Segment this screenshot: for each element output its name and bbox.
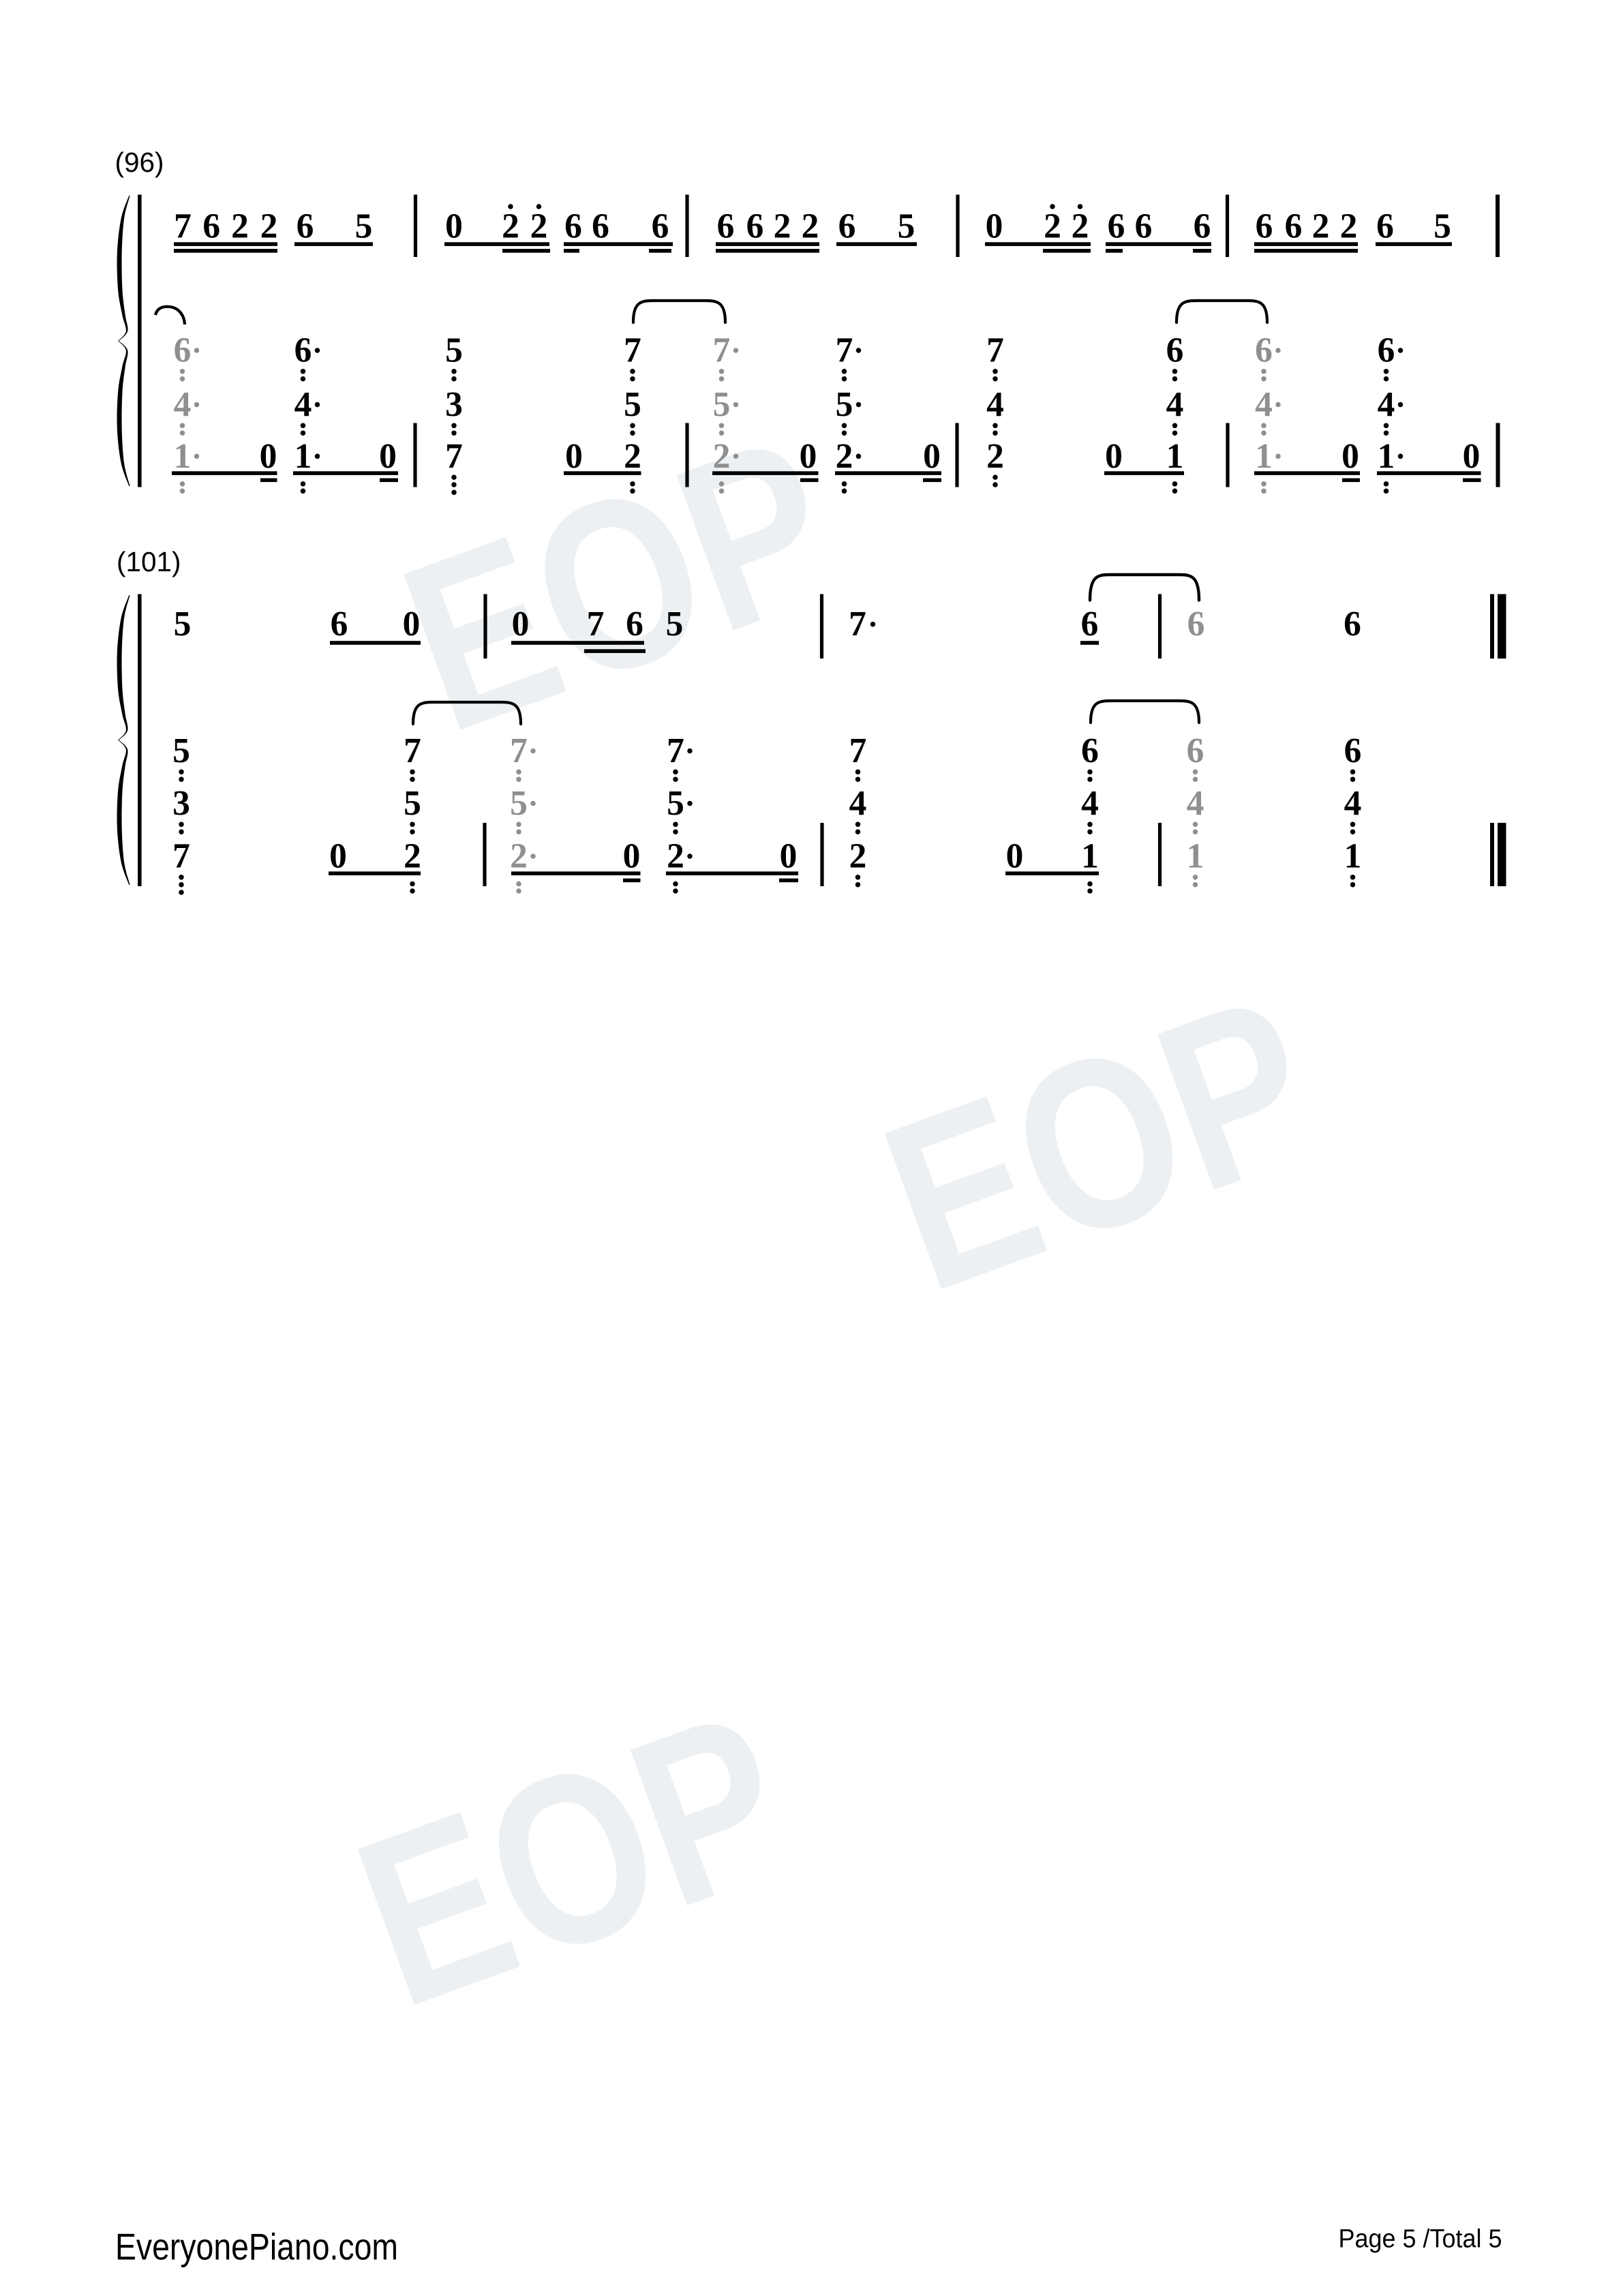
svg-text:Page 5 /Total 5: Page 5 /Total 5 (1339, 2225, 1502, 2254)
svg-text:7: 7 (587, 605, 605, 644)
svg-text:4: 4 (849, 784, 867, 823)
svg-text:6: 6 (297, 207, 314, 246)
svg-text:5: 5 (898, 207, 915, 246)
svg-text:2: 2 (404, 837, 421, 876)
svg-text:4: 4 (1255, 385, 1273, 424)
svg-text:0: 0 (512, 605, 530, 644)
svg-text:2: 2 (986, 437, 1004, 476)
svg-text:6: 6 (1135, 207, 1153, 246)
svg-text:4: 4 (294, 385, 312, 424)
svg-text:4: 4 (174, 385, 192, 424)
svg-text:6: 6 (838, 207, 856, 246)
svg-text:5: 5 (174, 605, 192, 644)
svg-text:6: 6 (1187, 605, 1205, 644)
svg-text:7: 7 (836, 331, 853, 370)
svg-text:6: 6 (1255, 331, 1273, 370)
svg-text:2: 2 (260, 207, 278, 246)
svg-text:7: 7 (174, 207, 192, 246)
svg-text:0: 0 (923, 437, 941, 476)
svg-text:2: 2 (1312, 207, 1330, 246)
svg-text:6: 6 (294, 331, 312, 370)
svg-text:0: 0 (329, 837, 347, 876)
svg-text:7: 7 (667, 731, 684, 770)
svg-text:1: 1 (1081, 837, 1099, 876)
svg-text:7: 7 (445, 437, 463, 476)
svg-text:5: 5 (172, 731, 190, 770)
svg-text:6: 6 (1166, 331, 1184, 370)
svg-text:0: 0 (403, 605, 421, 644)
svg-text:1: 1 (174, 437, 192, 476)
svg-text:2: 2 (624, 437, 641, 476)
svg-text:0: 0 (379, 437, 397, 476)
svg-text:0: 0 (800, 437, 817, 476)
svg-text:6: 6 (626, 605, 643, 644)
svg-text:0: 0 (1006, 837, 1024, 876)
svg-text:2: 2 (802, 207, 819, 246)
svg-text:1: 1 (294, 437, 312, 476)
svg-text:0: 0 (445, 207, 463, 246)
svg-text:4: 4 (1081, 784, 1099, 823)
svg-text:0: 0 (1105, 437, 1123, 476)
svg-text:4: 4 (1378, 385, 1395, 424)
svg-text:6: 6 (1256, 207, 1273, 246)
svg-text:1: 1 (1378, 437, 1395, 476)
svg-text:6: 6 (331, 605, 348, 644)
svg-text:6: 6 (1285, 207, 1303, 246)
svg-text:5: 5 (836, 385, 853, 424)
svg-text:2: 2 (502, 207, 519, 246)
svg-text:6: 6 (592, 207, 609, 246)
svg-text:4: 4 (1344, 784, 1362, 823)
svg-text:6: 6 (1081, 605, 1099, 644)
svg-text:(101): (101) (117, 546, 181, 577)
svg-text:5: 5 (510, 784, 528, 823)
svg-text:2: 2 (1340, 207, 1358, 246)
svg-text:6: 6 (1378, 331, 1395, 370)
svg-text:1: 1 (1187, 837, 1204, 876)
svg-text:2: 2 (774, 207, 791, 246)
svg-text:3: 3 (172, 784, 190, 823)
svg-text:4: 4 (1187, 784, 1204, 823)
svg-text:5: 5 (445, 331, 463, 370)
svg-text:3: 3 (445, 385, 463, 424)
svg-text:6: 6 (746, 207, 764, 246)
svg-text:6: 6 (1376, 207, 1394, 246)
svg-text:2: 2 (231, 207, 249, 246)
svg-text:5: 5 (624, 385, 641, 424)
svg-text:6: 6 (1344, 605, 1361, 644)
svg-text:7: 7 (404, 731, 421, 770)
svg-text:0: 0 (986, 207, 1003, 246)
svg-text:0: 0 (623, 837, 641, 876)
svg-text:EveryonePiano.com: EveryonePiano.com (115, 2226, 398, 2268)
svg-text:7: 7 (986, 331, 1004, 370)
svg-text:0: 0 (780, 837, 798, 876)
svg-text:4: 4 (1166, 385, 1184, 424)
svg-text:2: 2 (849, 837, 867, 876)
svg-text:2: 2 (510, 837, 528, 876)
svg-text:5: 5 (667, 784, 684, 823)
svg-text:1: 1 (1344, 837, 1362, 876)
svg-text:5: 5 (1434, 207, 1451, 246)
svg-text:6: 6 (1344, 731, 1362, 770)
svg-text:6: 6 (1187, 731, 1204, 770)
svg-text:6: 6 (652, 207, 669, 246)
svg-text:6: 6 (717, 207, 735, 246)
svg-text:6: 6 (1081, 731, 1099, 770)
svg-text:0: 0 (260, 437, 277, 476)
svg-text:0: 0 (1463, 437, 1481, 476)
svg-text:7: 7 (849, 605, 866, 644)
svg-text:7: 7 (172, 837, 190, 876)
svg-text:6: 6 (174, 331, 192, 370)
svg-text:5: 5 (713, 385, 731, 424)
svg-text:2: 2 (530, 207, 548, 246)
svg-text:5: 5 (404, 784, 421, 823)
svg-text:5: 5 (355, 207, 373, 246)
svg-text:0: 0 (565, 437, 583, 476)
svg-text:6: 6 (202, 207, 220, 246)
svg-text:2: 2 (713, 437, 731, 476)
svg-text:6: 6 (564, 207, 582, 246)
svg-text:7: 7 (624, 331, 641, 370)
svg-text:7: 7 (713, 331, 731, 370)
svg-text:7: 7 (849, 731, 867, 770)
svg-text:2: 2 (1072, 207, 1089, 246)
svg-text:2: 2 (667, 837, 684, 876)
svg-text:1: 1 (1255, 437, 1273, 476)
svg-text:(96): (96) (115, 147, 164, 178)
svg-text:7: 7 (510, 731, 528, 770)
svg-text:2: 2 (836, 437, 853, 476)
svg-text:0: 0 (1341, 437, 1359, 476)
svg-text:1: 1 (1166, 437, 1184, 476)
svg-text:5: 5 (666, 605, 684, 644)
svg-text:4: 4 (986, 385, 1004, 424)
svg-text:6: 6 (1194, 207, 1211, 246)
svg-text:2: 2 (1044, 207, 1061, 246)
svg-text:6: 6 (1108, 207, 1125, 246)
